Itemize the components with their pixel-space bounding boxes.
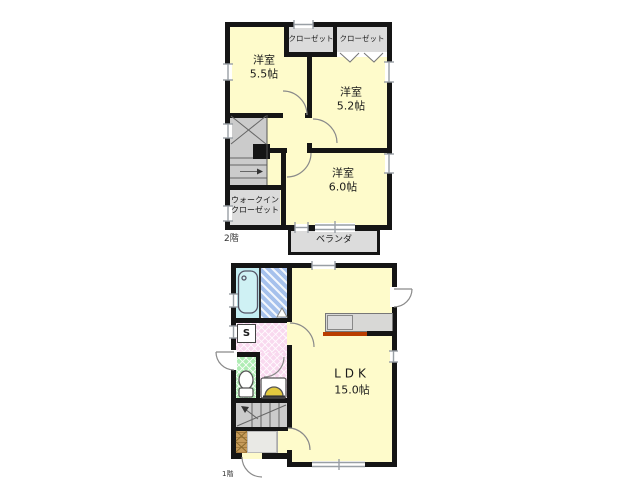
entrance-recess-patch — [228, 459, 287, 469]
walkin-closet-line1: ウォークイン — [231, 196, 279, 205]
room-label-5-2: 洋室 5.2帖 — [337, 86, 366, 115]
room-6-0-title: 洋室 — [332, 167, 354, 180]
washer-pan-label: S — [243, 328, 250, 339]
bathroom-floor — [236, 268, 259, 318]
floor1-label: 1階 — [222, 469, 233, 479]
ldk-title: LDK — [334, 366, 370, 380]
room-label-6-0: 洋室 6.0帖 — [329, 167, 358, 196]
balcony-label: ベランダ — [316, 235, 352, 247]
walkin-closet-line2: クローゼット — [231, 206, 279, 215]
floor-plan: 洋室 5.5帖 洋室 5.2帖 洋室 6.0帖 クローゼット クローゼット ウォ… — [0, 0, 640, 480]
wall-55-bottom-stub — [305, 113, 312, 118]
staircase-1f — [236, 403, 287, 427]
wall-genkan-bottom-left — [231, 453, 242, 459]
floor2-label: 2階 — [224, 231, 239, 244]
closet-right-label: クローゼット — [340, 34, 385, 44]
wall-closet-divider — [333, 27, 337, 52]
shoe-cabinet — [236, 431, 247, 453]
wall-stairs1-top — [231, 398, 292, 403]
wall-bath-side — [259, 268, 261, 318]
powder-room-floor-lower — [260, 352, 287, 398]
wall-60-top-right — [310, 148, 388, 153]
ldk-label: LDK 15.0帖 — [334, 366, 370, 397]
wall-kitchen-half — [367, 331, 395, 336]
kitchen-sink — [327, 315, 353, 330]
wall-wash-ldk-mid — [287, 345, 292, 428]
room-6-0-size: 6.0帖 — [329, 181, 358, 194]
ldk-size: 15.0帖 — [334, 383, 370, 396]
wall-stairs1-bottom — [231, 427, 288, 431]
room-5-2-size: 5.2帖 — [337, 100, 366, 113]
room-5-2-title: 洋室 — [340, 86, 362, 99]
toilet-floor — [236, 357, 256, 398]
wall-55-52 — [307, 52, 312, 118]
closet-left-label: クローゼット — [289, 34, 334, 44]
room-5-5-title: 洋室 — [253, 54, 275, 67]
entrance-step-line — [277, 431, 278, 453]
entrance-tataki — [247, 431, 277, 453]
wall-wic-top — [230, 185, 285, 190]
kitchen-counter-front — [323, 332, 367, 336]
washroom-floor — [261, 268, 287, 318]
wall-55-bottom — [230, 113, 283, 118]
wall-bath-bottom — [236, 318, 287, 323]
wall-wash-ldk-top — [287, 268, 292, 322]
wall-toilet-right — [256, 357, 260, 403]
wall-genkan-bottom-right — [262, 453, 288, 459]
room-5-5-size: 5.5帖 — [250, 68, 279, 81]
closet-right-opening — [337, 52, 387, 57]
washer-pan: S — [237, 324, 256, 343]
walkin-closet-label: ウォークイン クローゼット — [231, 196, 279, 217]
room-label-5-5: 洋室 5.5帖 — [250, 54, 279, 83]
wall-60-left — [281, 148, 286, 230]
